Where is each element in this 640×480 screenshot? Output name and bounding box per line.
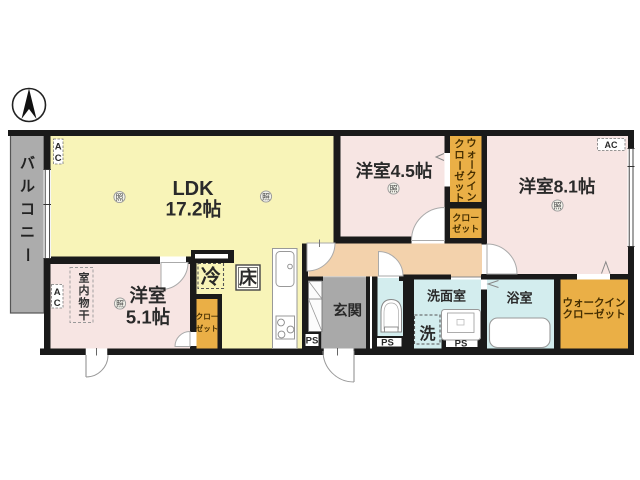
svg-text:ト: ト <box>454 193 464 205</box>
svg-text:A: A <box>55 142 62 153</box>
svg-text:C: C <box>54 298 61 309</box>
svg-text:AC: AC <box>605 140 618 150</box>
svg-text:クロー: クロー <box>452 213 479 223</box>
svg-text:室: 室 <box>79 271 90 285</box>
svg-text:洋室8.1帖: 洋室8.1帖 <box>519 177 596 197</box>
svg-text:ク: ク <box>454 139 464 151</box>
svg-text:ー: ー <box>453 160 464 170</box>
svg-text:ル: ル <box>20 178 35 195</box>
svg-text:ゼ: ゼ <box>454 170 465 183</box>
svg-text:内: 内 <box>79 283 90 297</box>
svg-text:床: 床 <box>239 267 258 288</box>
svg-text:洗面室: 洗面室 <box>427 289 466 304</box>
svg-text:クロー: クロー <box>196 311 219 321</box>
svg-text:照: 照 <box>116 193 124 202</box>
svg-text:ク: ク <box>466 170 476 182</box>
svg-text:バ: バ <box>20 155 35 172</box>
svg-text:ニ: ニ <box>20 224 35 241</box>
svg-text:玄関: 玄関 <box>333 302 362 320</box>
svg-text:ウ: ウ <box>466 138 476 150</box>
svg-text:浴室: 浴室 <box>506 291 532 306</box>
svg-text:ッ: ッ <box>454 183 464 194</box>
svg-text:クローゼット: クローゼット <box>563 308 626 321</box>
svg-text:干: 干 <box>79 309 90 322</box>
svg-text:17.2帖: 17.2帖 <box>166 198 222 221</box>
svg-text:洗: 洗 <box>419 324 435 343</box>
svg-text:ゼット: ゼット <box>452 223 479 234</box>
svg-text:洋室4.5帖: 洋室4.5帖 <box>356 161 433 181</box>
svg-text:コ: コ <box>20 201 35 218</box>
svg-text:照: 照 <box>390 184 398 193</box>
svg-text:物: 物 <box>79 296 90 310</box>
svg-text:A: A <box>54 287 61 298</box>
svg-text:照: 照 <box>116 299 124 308</box>
svg-text:C: C <box>55 153 62 164</box>
svg-text:イ: イ <box>466 181 476 193</box>
svg-text:照: 照 <box>554 201 562 210</box>
svg-text:PS: PS <box>455 339 468 350</box>
svg-text:5.1帖: 5.1帖 <box>126 307 171 328</box>
svg-text:照: 照 <box>262 192 270 201</box>
svg-text:冷: 冷 <box>201 265 221 289</box>
svg-text:ー: ー <box>18 247 35 262</box>
svg-text:PS: PS <box>306 336 319 347</box>
svg-text:ウォークイン: ウォークイン <box>563 297 626 309</box>
svg-text:ー: ー <box>465 159 476 169</box>
svg-text:ン: ン <box>466 193 476 204</box>
svg-text:PS: PS <box>381 338 394 349</box>
svg-text:LDK: LDK <box>172 178 214 200</box>
svg-text:ゼット: ゼット <box>196 323 219 333</box>
svg-text:洋室: 洋室 <box>129 285 166 306</box>
